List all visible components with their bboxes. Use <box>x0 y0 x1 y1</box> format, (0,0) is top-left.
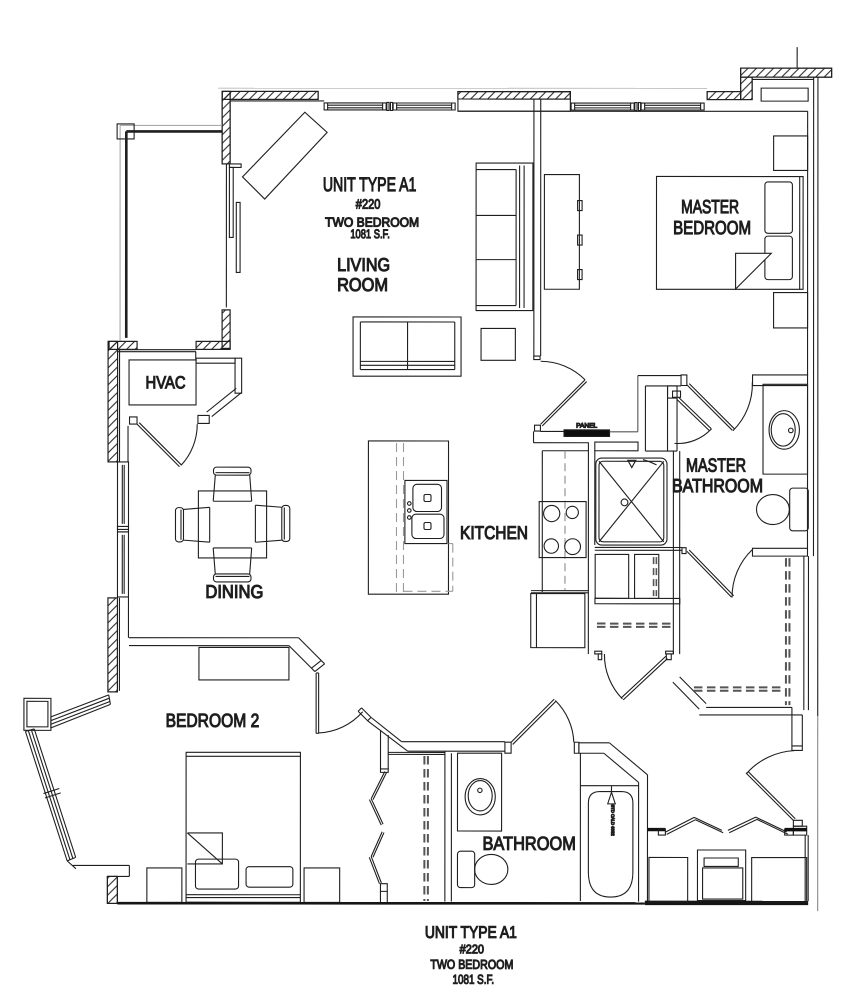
svg-text:MASTER: MASTER <box>686 456 746 477</box>
svg-text:1081 S.F.: 1081 S.F. <box>453 972 495 987</box>
svg-text:1081 S.F.: 1081 S.F. <box>350 227 390 241</box>
svg-text:UNIT TYPE A1: UNIT TYPE A1 <box>323 174 417 196</box>
svg-text:#220: #220 <box>460 942 484 956</box>
svg-text:HVAC: HVAC <box>146 372 186 392</box>
svg-text:ROOM: ROOM <box>337 274 388 295</box>
svg-text:LIVING: LIVING <box>337 254 390 275</box>
svg-text:KITCHEN: KITCHEN <box>460 522 528 543</box>
svg-text:STD CALD 6032: STD CALD 6032 <box>610 804 615 836</box>
svg-text:BEDROOM 2: BEDROOM 2 <box>166 711 260 732</box>
svg-text:DINING: DINING <box>205 581 263 602</box>
svg-text:PANEL: PANEL <box>576 423 597 430</box>
svg-text:UNIT TYPE A1: UNIT TYPE A1 <box>425 923 517 942</box>
svg-text:MASTER: MASTER <box>681 197 739 218</box>
svg-text:BATHROOM: BATHROOM <box>672 476 763 497</box>
svg-text:TWO BEDROOM: TWO BEDROOM <box>430 957 513 972</box>
svg-text:#220: #220 <box>356 197 381 212</box>
svg-text:BATHROOM: BATHROOM <box>483 834 576 855</box>
svg-text:BEDROOM: BEDROOM <box>673 218 751 239</box>
